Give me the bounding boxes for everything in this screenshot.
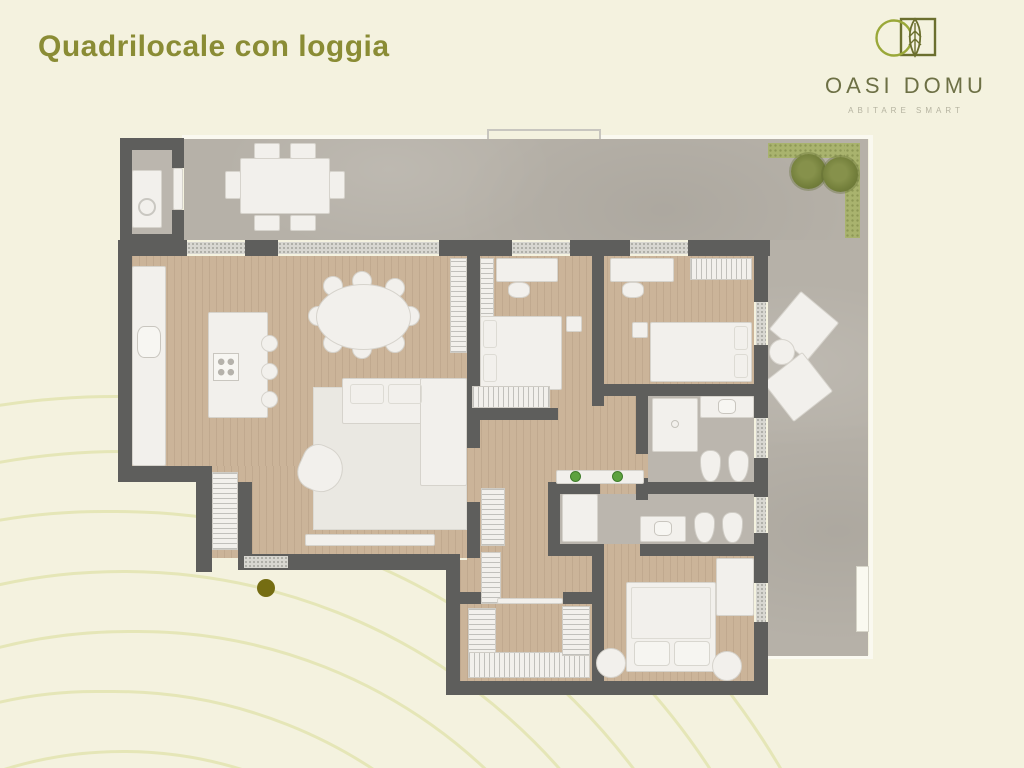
wall bbox=[548, 544, 604, 556]
outdoor-chair bbox=[329, 171, 345, 199]
wall bbox=[120, 138, 132, 246]
kitchen-counter bbox=[132, 266, 166, 466]
wall bbox=[636, 482, 754, 494]
page: Quadrilocale con loggia OASI DOMU ABITAR… bbox=[0, 0, 1024, 768]
outdoor-chair bbox=[290, 215, 316, 231]
stool bbox=[261, 363, 278, 380]
pillow bbox=[634, 641, 670, 666]
outdoor-dining-table bbox=[240, 158, 330, 214]
cooktop bbox=[213, 353, 239, 381]
terrace-right bbox=[768, 240, 868, 656]
bookshelf bbox=[450, 258, 467, 353]
washer-drum bbox=[138, 198, 156, 216]
wall bbox=[245, 240, 278, 256]
wall bbox=[446, 554, 460, 695]
closet-shelf bbox=[562, 606, 590, 656]
outdoor-chair bbox=[254, 215, 280, 231]
dining-table bbox=[316, 284, 411, 350]
wall bbox=[754, 240, 768, 302]
tree bbox=[791, 154, 826, 189]
outdoor-chair bbox=[290, 143, 316, 159]
side-table bbox=[769, 339, 795, 365]
wardrobe bbox=[716, 558, 754, 616]
pillow bbox=[734, 354, 748, 378]
sink bbox=[654, 521, 672, 536]
outdoor-chair bbox=[225, 171, 241, 199]
window bbox=[187, 242, 245, 254]
pillow bbox=[483, 354, 497, 382]
window bbox=[512, 242, 570, 254]
wall bbox=[439, 240, 512, 256]
wall bbox=[467, 502, 480, 558]
wall bbox=[196, 466, 212, 572]
wall bbox=[754, 345, 768, 418]
wall bbox=[172, 138, 184, 168]
wardrobe bbox=[690, 258, 752, 280]
desk-chair bbox=[508, 282, 530, 298]
laundry-door bbox=[173, 168, 183, 210]
pillow bbox=[674, 641, 710, 666]
wall bbox=[570, 240, 630, 256]
pillow bbox=[734, 326, 748, 350]
wall bbox=[604, 384, 754, 396]
shower bbox=[562, 494, 598, 542]
wall bbox=[754, 533, 768, 583]
wall bbox=[563, 592, 592, 604]
hall-cabinet bbox=[212, 472, 238, 550]
plant bbox=[612, 471, 623, 482]
window bbox=[756, 497, 766, 533]
hall-shelf bbox=[481, 552, 501, 604]
sofa-cushion bbox=[388, 384, 422, 404]
terrace-edge bbox=[869, 135, 873, 659]
pillow bbox=[483, 320, 497, 348]
shower-drain bbox=[671, 420, 679, 428]
nightstand bbox=[566, 316, 582, 332]
wall bbox=[754, 458, 768, 497]
entrance-threshold bbox=[244, 556, 288, 568]
wall bbox=[467, 408, 558, 420]
wall bbox=[238, 482, 252, 558]
tree bbox=[823, 157, 858, 192]
mattress bbox=[631, 587, 711, 639]
sofa-chaise bbox=[420, 378, 467, 486]
wall bbox=[446, 681, 768, 695]
wall bbox=[118, 240, 132, 480]
closet-door bbox=[497, 598, 563, 604]
wall bbox=[128, 240, 187, 256]
sink bbox=[718, 399, 736, 414]
wall bbox=[636, 396, 648, 454]
window bbox=[756, 583, 766, 622]
tv-bench bbox=[305, 534, 435, 546]
hall-shelf bbox=[481, 488, 505, 546]
entrance-marker bbox=[257, 579, 275, 597]
wall bbox=[640, 544, 754, 556]
pouf bbox=[596, 648, 626, 678]
pouf bbox=[712, 651, 742, 681]
wall bbox=[754, 622, 768, 695]
window bbox=[278, 242, 439, 254]
desk bbox=[496, 258, 558, 282]
stool bbox=[261, 335, 278, 352]
sofa-cushion bbox=[350, 384, 384, 404]
dimension-tag bbox=[856, 566, 869, 632]
desk bbox=[610, 258, 674, 282]
outdoor-chair bbox=[254, 143, 280, 159]
kitchen-sink bbox=[137, 326, 161, 358]
plant bbox=[570, 471, 581, 482]
nightstand bbox=[632, 322, 648, 338]
wardrobe bbox=[472, 386, 550, 408]
window bbox=[756, 302, 766, 345]
stool bbox=[261, 391, 278, 408]
floor-plan bbox=[0, 0, 1024, 768]
wall bbox=[592, 256, 604, 406]
desk-chair bbox=[622, 282, 644, 298]
window bbox=[756, 418, 766, 458]
window bbox=[630, 242, 688, 254]
